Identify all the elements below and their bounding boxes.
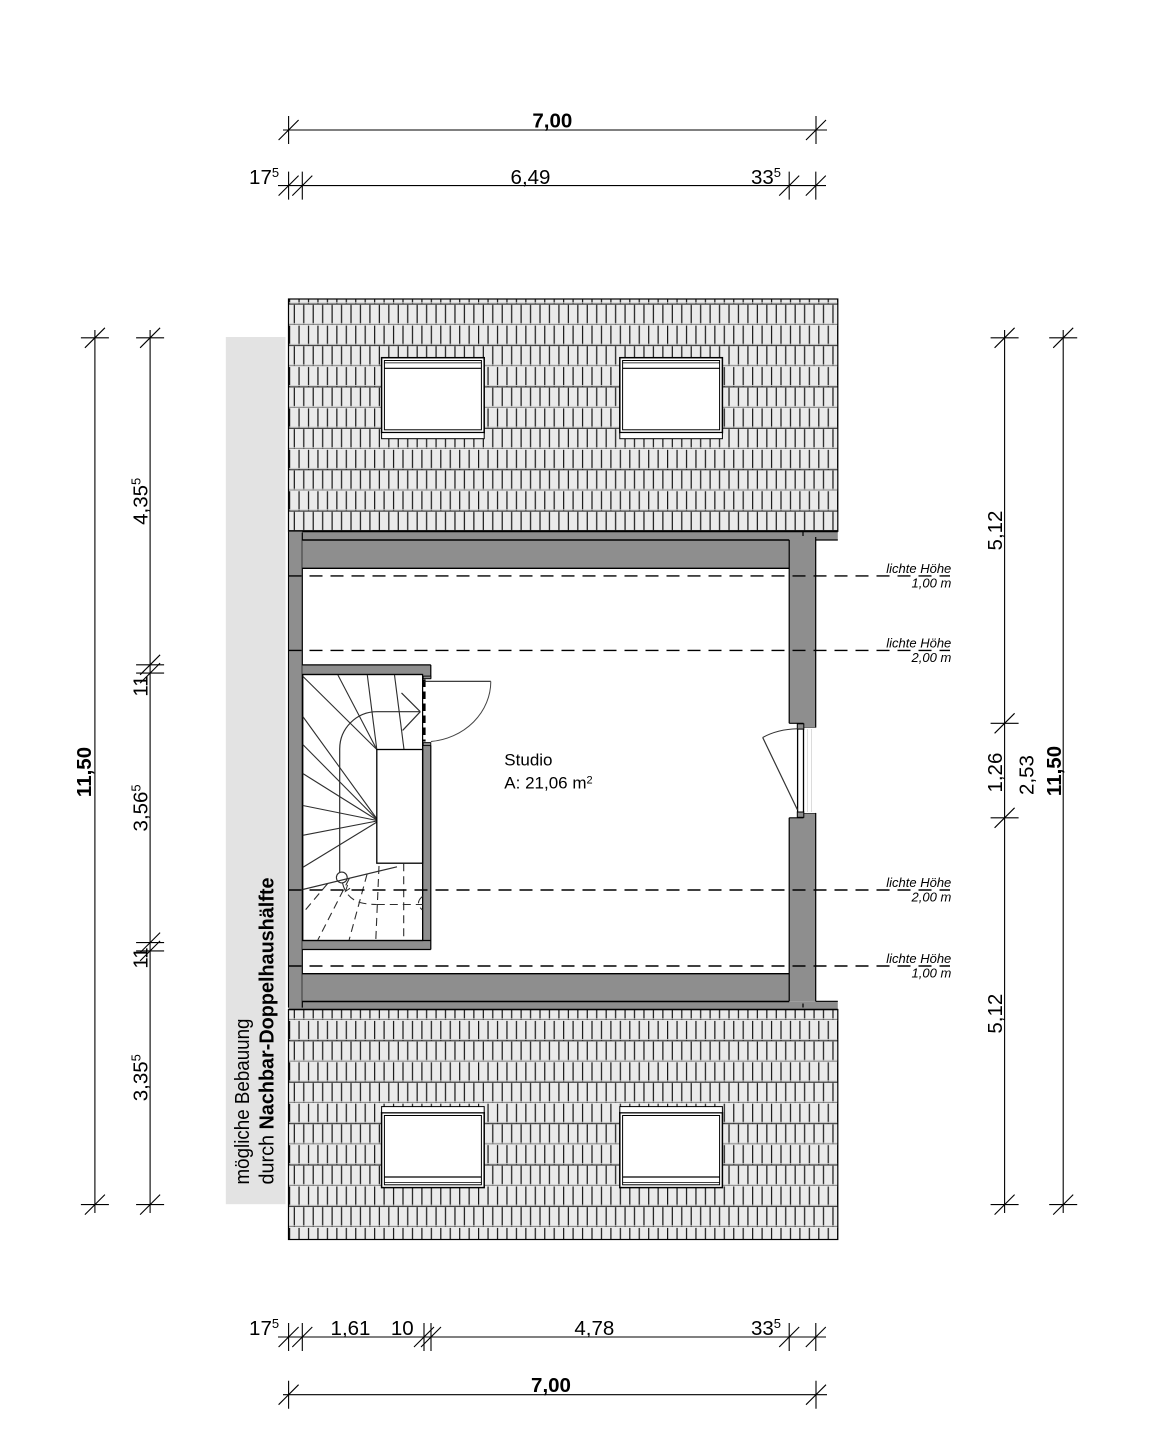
svg-text:7,00: 7,00 (531, 1374, 571, 1397)
svg-text:mögliche Bebauung: mögliche Bebauung (232, 1019, 254, 1185)
svg-text:2,00 m: 2,00 m (911, 650, 952, 665)
svg-text:lichte Höhe: lichte Höhe (886, 561, 951, 576)
svg-text:11: 11 (129, 675, 152, 696)
svg-text:lichte Höhe: lichte Höhe (886, 875, 951, 890)
svg-text:11: 11 (129, 947, 152, 968)
svg-text:1,00 m: 1,00 m (912, 965, 952, 980)
svg-text:1,26: 1,26 (984, 753, 1007, 793)
svg-text:6,49: 6,49 (511, 166, 551, 189)
svg-text:lichte Höhe: lichte Höhe (886, 636, 951, 651)
svg-text:10: 10 (391, 1317, 414, 1340)
svg-text:4,78: 4,78 (574, 1317, 614, 1340)
svg-text:11,50: 11,50 (73, 747, 96, 797)
svg-text:7,00: 7,00 (532, 110, 572, 133)
svg-text:1,61: 1,61 (331, 1317, 371, 1340)
svg-text:lichte Höhe: lichte Höhe (886, 951, 951, 966)
svg-text:1,00 m: 1,00 m (912, 575, 952, 590)
svg-text:2,00 m: 2,00 m (911, 890, 952, 905)
svg-text:5,12: 5,12 (984, 511, 1007, 551)
svg-text:Studio: Studio (504, 751, 552, 770)
svg-text:2,53: 2,53 (1015, 755, 1038, 795)
svg-text:11,50: 11,50 (1043, 746, 1066, 796)
svg-text:A: 21,06 m2: A: 21,06 m2 (504, 774, 592, 793)
svg-text:5,12: 5,12 (984, 994, 1007, 1034)
svg-text:durch Nachbar-Doppelhaushälfte: durch Nachbar-Doppelhaushälfte (257, 878, 279, 1185)
